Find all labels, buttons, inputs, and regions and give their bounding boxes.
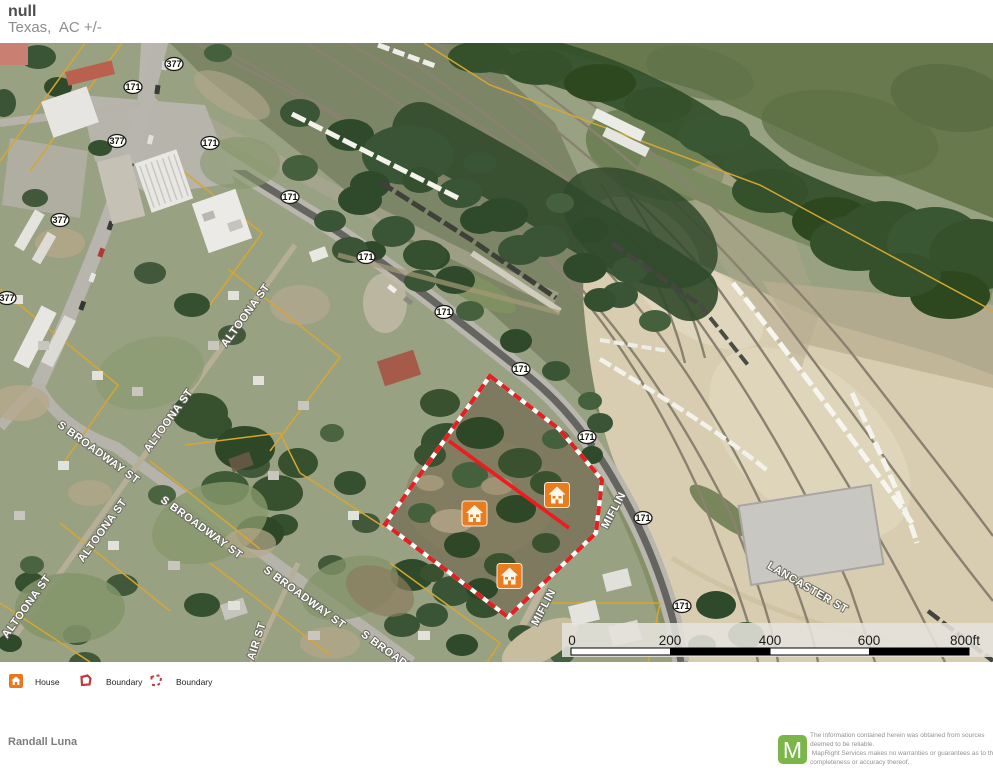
- svg-text:600: 600: [858, 633, 881, 648]
- svg-text:171: 171: [202, 138, 217, 148]
- svg-text:0: 0: [568, 633, 576, 648]
- svg-text:171: 171: [436, 307, 451, 317]
- svg-text:200: 200: [659, 633, 682, 648]
- svg-text:377: 377: [166, 59, 181, 69]
- svg-text:171: 171: [358, 252, 373, 262]
- svg-text:800ft: 800ft: [950, 633, 980, 648]
- svg-text:171: 171: [579, 432, 594, 442]
- svg-text:377: 377: [0, 293, 15, 303]
- svg-text:377: 377: [109, 136, 124, 146]
- svg-text:171: 171: [282, 192, 297, 202]
- svg-text:171: 171: [513, 364, 528, 374]
- svg-text:400: 400: [759, 633, 782, 648]
- svg-text:377: 377: [52, 215, 67, 225]
- svg-text:171: 171: [125, 82, 140, 92]
- svg-text:171: 171: [635, 513, 650, 523]
- svg-text:171: 171: [674, 601, 689, 611]
